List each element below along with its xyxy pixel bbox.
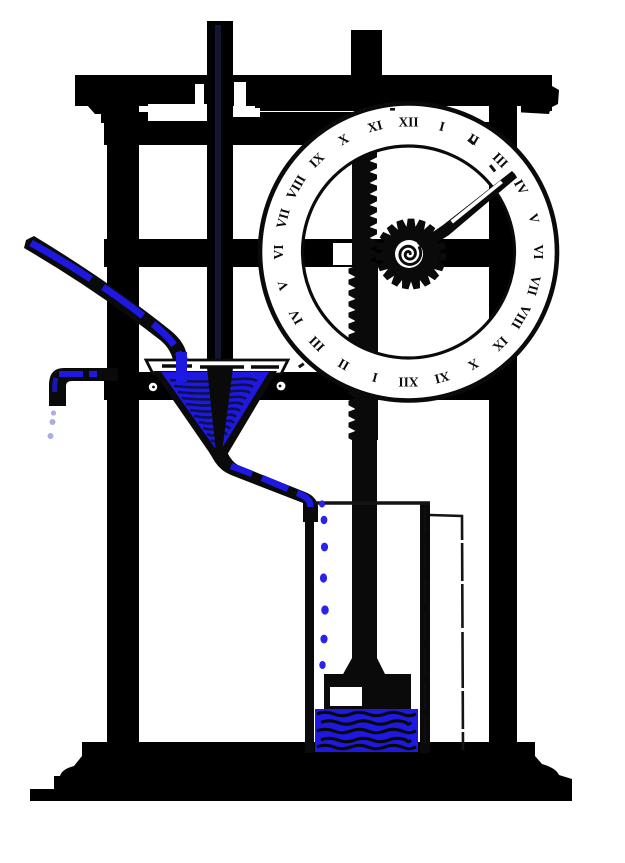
svg-text:VI: VI bbox=[271, 245, 286, 260]
svg-text:XII: XII bbox=[398, 115, 418, 130]
svg-text:XII: XII bbox=[398, 375, 418, 390]
svg-text:VI: VI bbox=[531, 245, 546, 260]
